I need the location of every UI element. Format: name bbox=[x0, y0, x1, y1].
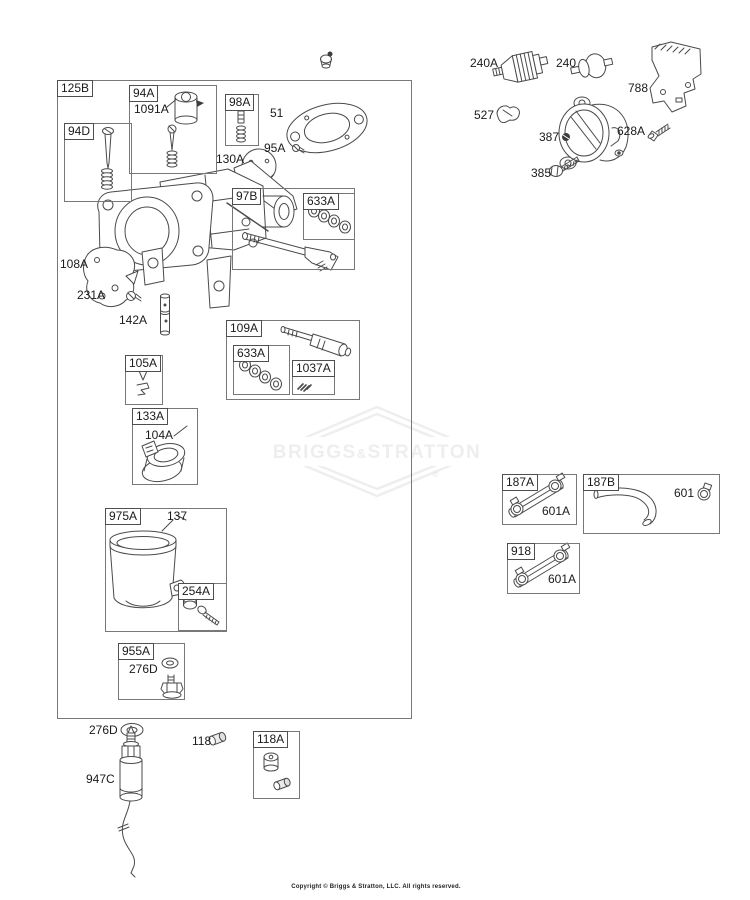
small-cap-drawing bbox=[321, 52, 333, 69]
callout-633A-a: 633A bbox=[303, 193, 339, 210]
callout-527: 527 bbox=[474, 108, 494, 122]
callout-133A: 133A bbox=[132, 408, 168, 425]
clip-527-drawing bbox=[497, 106, 519, 123]
callout-788: 788 bbox=[628, 81, 648, 95]
bracket-788-drawing bbox=[650, 42, 701, 112]
callout-254A: 254A bbox=[178, 583, 214, 600]
callout-108A: 108A bbox=[60, 257, 88, 271]
callout-918: 918 bbox=[507, 543, 535, 560]
callout-94D: 94D bbox=[64, 123, 94, 140]
copyright-text: Copyright © Briggs & Stratton, LLC. All … bbox=[291, 884, 460, 890]
parts-diagram-canvas: BRIGGS&STRATTON ® bbox=[0, 0, 750, 900]
callout-187B: 187B bbox=[583, 474, 619, 491]
callout-97B: 97B bbox=[232, 188, 261, 205]
callout-276D-inner: 276D bbox=[129, 662, 158, 676]
fuel-solenoid-947C-drawing bbox=[118, 726, 142, 877]
callout-385: 385 bbox=[531, 166, 551, 180]
callout-975A: 975A bbox=[105, 508, 141, 525]
callout-1091A: 1091A bbox=[134, 102, 169, 116]
callout-955A: 955A bbox=[118, 643, 154, 660]
callout-601A-b: 601A bbox=[548, 572, 576, 586]
callout-125B: 125B bbox=[57, 80, 93, 97]
callout-633A-b: 633A bbox=[233, 345, 269, 362]
callout-98A: 98A bbox=[225, 94, 254, 111]
fuel-filter-240A-drawing bbox=[491, 49, 550, 87]
callout-628A: 628A bbox=[617, 124, 645, 138]
callout-947C: 947C bbox=[86, 772, 115, 786]
callout-601: 601 bbox=[674, 486, 694, 500]
callout-94A: 94A bbox=[129, 85, 158, 102]
callout-118A: 118A bbox=[253, 731, 288, 748]
screw-628A-drawing bbox=[647, 124, 670, 141]
callout-104A: 104A bbox=[145, 428, 173, 442]
callout-118: 118 bbox=[192, 734, 211, 748]
callout-137: 137 bbox=[167, 509, 187, 523]
callout-240A: 240A bbox=[470, 56, 498, 70]
callout-240: 240 bbox=[556, 56, 576, 70]
callout-51: 51 bbox=[270, 106, 283, 120]
callout-109A: 109A bbox=[226, 320, 262, 337]
callout-130A: 130A bbox=[216, 152, 244, 166]
callout-231A: 231A bbox=[77, 288, 105, 302]
callout-276D-outer: 276D bbox=[89, 723, 118, 737]
callout-1037A: 1037A bbox=[292, 360, 335, 377]
callout-95A: 95A bbox=[264, 141, 285, 155]
callout-187A: 187A bbox=[502, 474, 538, 491]
callout-142A: 142A bbox=[119, 313, 147, 327]
callout-601A-a: 601A bbox=[542, 504, 570, 518]
callout-105A: 105A bbox=[125, 355, 161, 372]
callout-387: 387 bbox=[539, 130, 559, 144]
watermark-registered-mark: ® bbox=[432, 469, 439, 479]
